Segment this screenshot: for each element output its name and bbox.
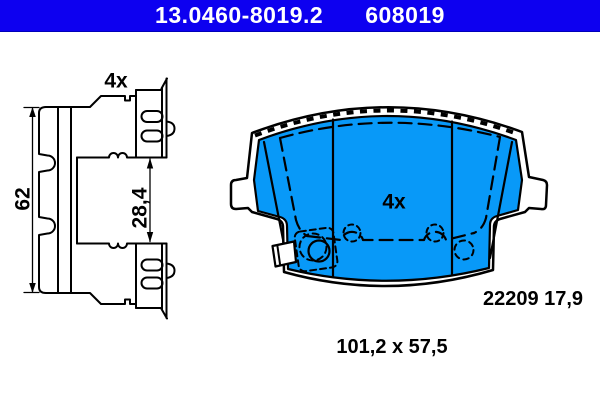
clip-bottom-profile [46, 293, 162, 308]
clip-slot [142, 131, 163, 142]
accessory-drawing [24, 79, 175, 319]
clip-left-edge [39, 107, 55, 293]
pad-quantity-label: 4x [382, 192, 405, 213]
wear-indicator-tab [273, 242, 297, 267]
clip-slot [142, 111, 163, 122]
arrowhead [29, 283, 36, 293]
arrowhead [147, 158, 153, 169]
accessory-height-dimension: 62 [13, 187, 34, 210]
accessory-depth-dimension: 28,4 [130, 188, 151, 229]
clip-side-bumps [167, 122, 175, 279]
page: 13.0460-8019.2 608019 [0, 0, 600, 400]
overall-dimensions-label: 101,2 x 57,5 [336, 337, 447, 357]
arrowhead [29, 107, 36, 117]
clip-slot [142, 278, 163, 289]
technical-drawing [0, 0, 600, 400]
pad-wva-thickness-label: 22209 17,9 [483, 289, 583, 309]
clip-bend-lines [58, 107, 71, 293]
clip-recess-bottom [77, 244, 167, 249]
accessory-quantity-label: 4x [104, 71, 127, 92]
arrowhead [147, 232, 153, 243]
clip-top-profile [46, 90, 162, 107]
clip-recess-top [77, 153, 167, 158]
clip-slot [142, 260, 163, 271]
